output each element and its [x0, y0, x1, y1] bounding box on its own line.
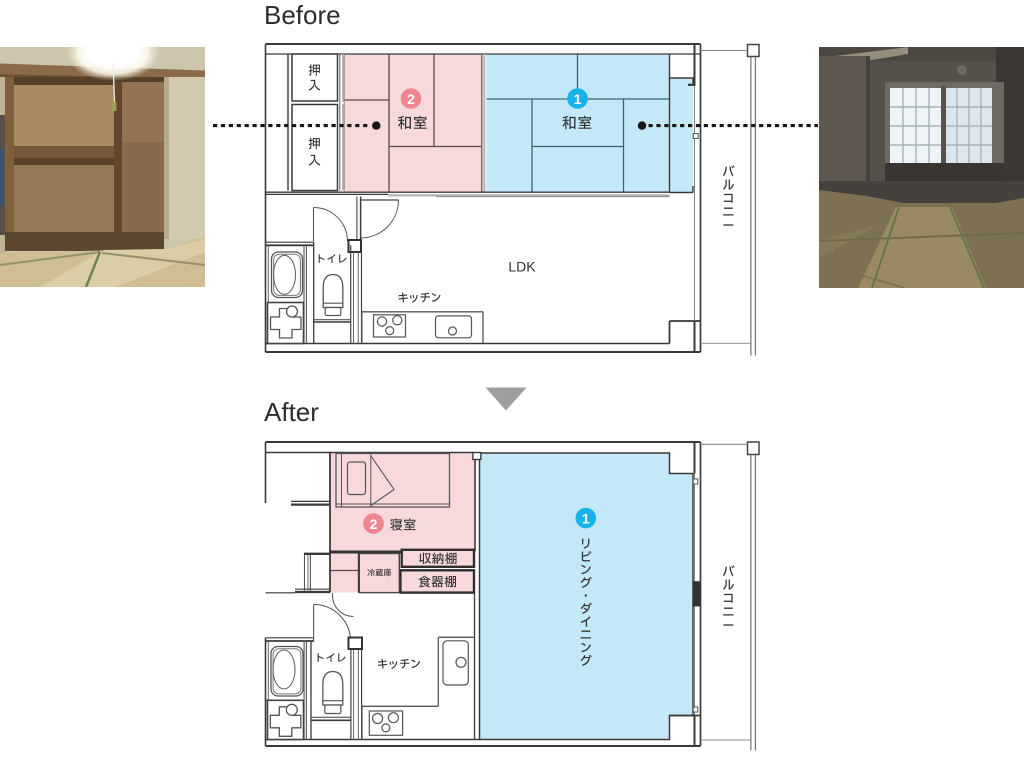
svg-text:LDK: LDK	[508, 259, 536, 275]
svg-text:2: 2	[407, 91, 415, 107]
svg-text:Before: Before	[264, 0, 341, 30]
svg-text:2: 2	[370, 516, 378, 532]
svg-text:After: After	[264, 397, 319, 427]
svg-text:1: 1	[574, 91, 582, 107]
svg-text:1: 1	[582, 510, 590, 526]
